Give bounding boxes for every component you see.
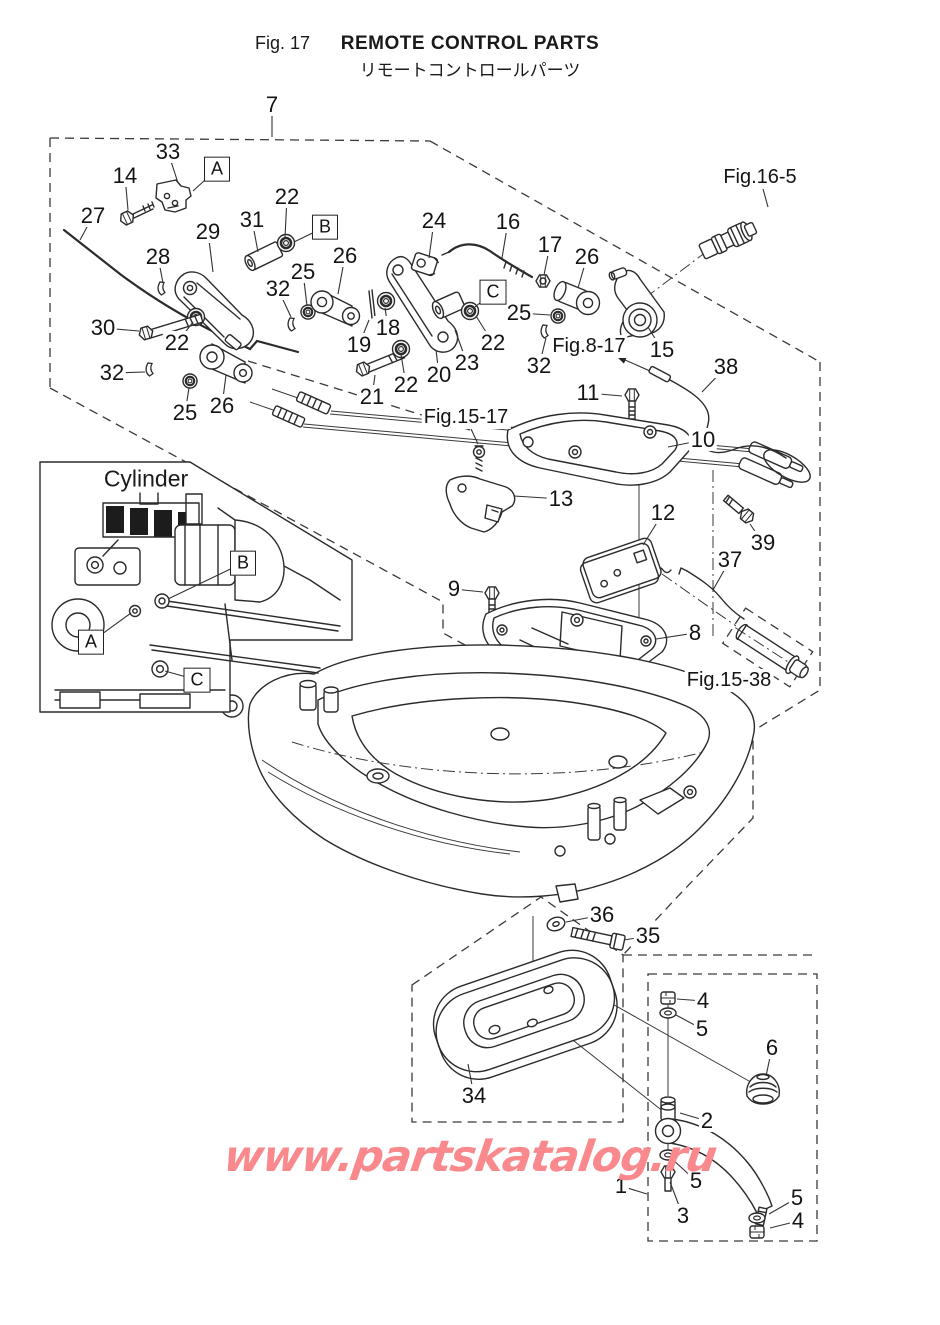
labels-layer: 7331422273129282625323022322526241617262… xyxy=(0,0,940,1325)
part-label-25: 25 xyxy=(171,401,199,424)
part-label-22: 22 xyxy=(163,331,191,354)
part-label-5: 5 xyxy=(789,1186,805,1209)
callout-box-b: B xyxy=(312,215,338,240)
part-label-18: 18 xyxy=(374,316,402,339)
part-label-7: 7 xyxy=(264,93,280,116)
part-label-15: 15 xyxy=(648,338,676,361)
part-label-35: 35 xyxy=(634,924,662,947)
part-label-22: 22 xyxy=(479,331,507,354)
part-label-30: 30 xyxy=(89,316,117,339)
part-label-16: 16 xyxy=(494,210,522,233)
part-label-21: 21 xyxy=(358,385,386,408)
part-label-32: 32 xyxy=(264,277,292,300)
part-label-25: 25 xyxy=(289,260,317,283)
part-label-4: 4 xyxy=(695,989,711,1012)
part-label-31: 31 xyxy=(238,208,266,231)
part-label-25: 25 xyxy=(505,301,533,324)
callout-box-c: C xyxy=(184,668,211,693)
part-label-27: 27 xyxy=(79,204,107,227)
watermark: www.partskatalog.ru xyxy=(221,1132,719,1182)
figure-reference-fig-15-38: Fig.15-38 xyxy=(685,669,774,692)
callout-box-a: A xyxy=(78,630,104,655)
parts-catalog-page: { "header": { "fig_no": "Fig. 17", "titl… xyxy=(0,0,940,1325)
part-label-26: 26 xyxy=(208,394,236,417)
part-label-11: 11 xyxy=(575,381,602,404)
part-label-5: 5 xyxy=(694,1017,710,1040)
part-label-10: 10 xyxy=(689,428,717,451)
part-label-26: 26 xyxy=(331,244,359,267)
figure-reference-fig-16-5: Fig.16-5 xyxy=(721,166,798,189)
callout-box-c: C xyxy=(480,280,507,305)
part-label-17: 17 xyxy=(536,233,564,256)
part-label-14: 14 xyxy=(111,164,139,187)
part-label-38: 38 xyxy=(712,355,740,378)
callout-box-a: A xyxy=(204,157,230,182)
part-label-9: 9 xyxy=(446,577,462,600)
figure-reference-fig-15-17: Fig.15-17 xyxy=(422,406,511,429)
part-label-22: 22 xyxy=(392,373,420,396)
part-label-12: 12 xyxy=(649,501,677,524)
part-label-8: 8 xyxy=(687,621,703,644)
part-label-28: 28 xyxy=(144,245,172,268)
part-label-2: 2 xyxy=(699,1109,715,1132)
part-label-39: 39 xyxy=(749,531,777,554)
part-label-32: 32 xyxy=(98,361,126,384)
part-label-26: 26 xyxy=(573,245,601,268)
part-label-22: 22 xyxy=(273,185,301,208)
part-label-3: 3 xyxy=(675,1204,691,1227)
part-label-6: 6 xyxy=(764,1036,780,1059)
part-label-34: 34 xyxy=(460,1084,488,1107)
inset-title-cylinder: Cylinder xyxy=(100,466,192,493)
part-label-19: 19 xyxy=(345,333,373,356)
part-label-13: 13 xyxy=(547,487,575,510)
part-label-24: 24 xyxy=(420,209,448,232)
part-label-4: 4 xyxy=(790,1209,806,1232)
callout-box-b: B xyxy=(230,551,256,576)
figure-reference-fig-8-17: Fig.8-17 xyxy=(550,335,627,358)
part-label-36: 36 xyxy=(588,903,616,926)
part-label-33: 33 xyxy=(154,140,182,163)
part-label-23: 23 xyxy=(453,351,481,374)
part-label-37: 37 xyxy=(716,548,744,571)
part-label-32: 32 xyxy=(525,354,553,377)
part-label-29: 29 xyxy=(194,220,222,243)
part-label-20: 20 xyxy=(425,363,453,386)
